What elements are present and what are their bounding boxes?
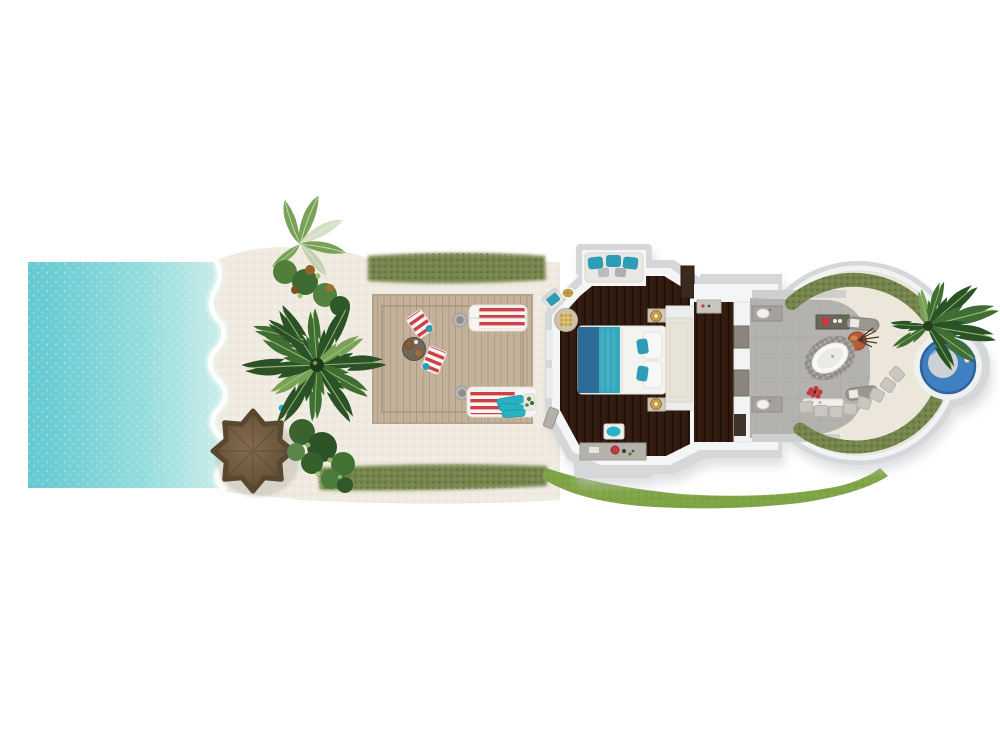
wardrobe-1	[734, 326, 749, 348]
vanity-bottom	[752, 397, 782, 412]
bed-throw	[578, 327, 599, 393]
floor-plan-stage	[0, 0, 1000, 750]
wardrobe-2	[734, 370, 749, 396]
minibar-console	[580, 443, 646, 460]
ocean	[28, 262, 232, 488]
deck-round-table	[403, 338, 426, 361]
glass-door-2	[546, 368, 553, 398]
dark-cabinet	[681, 266, 694, 298]
hedge-top	[368, 253, 546, 283]
vanity-top	[752, 306, 782, 321]
gold-tray	[562, 288, 574, 298]
bedroom	[541, 250, 698, 465]
sun-lounger-top	[468, 305, 530, 331]
side-table-top	[453, 313, 467, 327]
bath-console	[816, 315, 849, 329]
deck-planter	[524, 394, 535, 410]
round-rug	[555, 309, 578, 332]
teal-stool	[604, 424, 624, 439]
timber-deck	[373, 295, 537, 423]
floor-plan-canvas	[0, 0, 1000, 750]
glass-door-1	[546, 330, 553, 360]
luggage-niche	[734, 414, 746, 436]
sun-lounger-bottom	[467, 387, 537, 418]
alcove-sofa	[582, 250, 646, 286]
